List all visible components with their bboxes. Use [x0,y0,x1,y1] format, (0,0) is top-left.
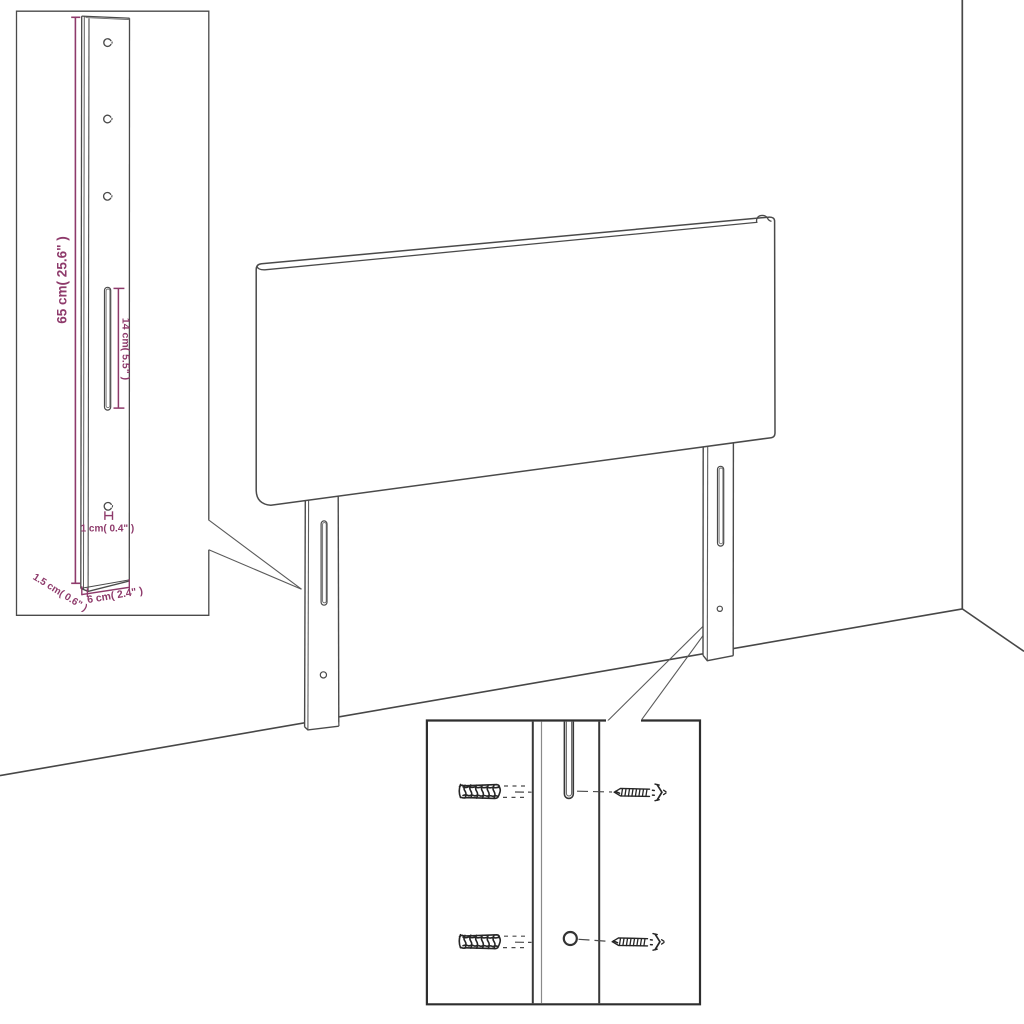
svg-text:6 cm( 2.4" ): 6 cm( 2.4" ) [86,585,144,606]
svg-text:65 cm( 25.6" ): 65 cm( 25.6" ) [55,236,70,323]
svg-text:14 cm( 5.5" ): 14 cm( 5.5" ) [120,318,132,380]
svg-text:1 cm( 0.4" ): 1 cm( 0.4" ) [81,524,135,535]
